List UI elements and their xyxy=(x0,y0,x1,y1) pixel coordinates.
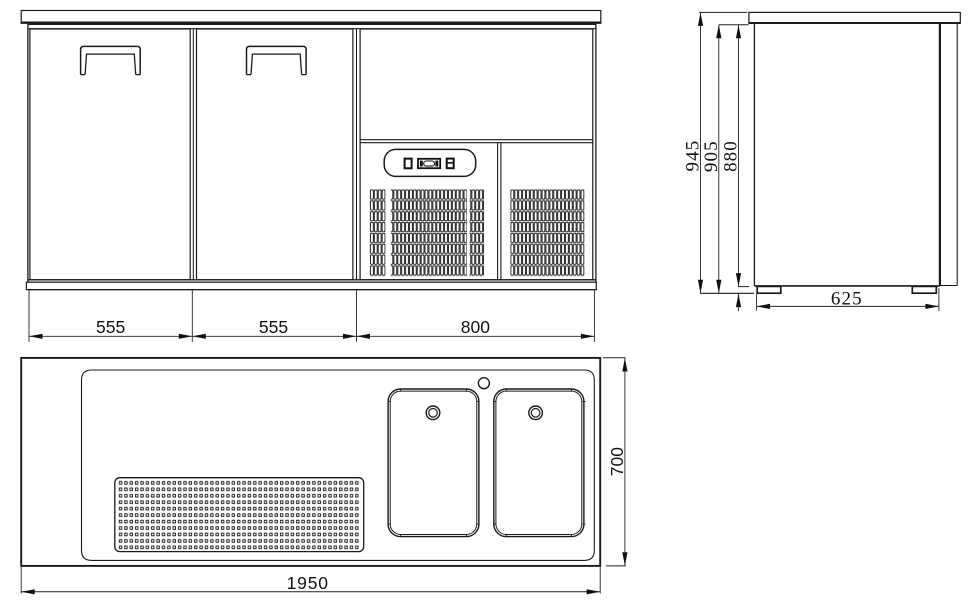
svg-text:700: 700 xyxy=(607,447,627,476)
svg-text:555: 555 xyxy=(259,317,288,337)
svg-text:905: 905 xyxy=(701,140,722,172)
svg-text:880: 880 xyxy=(721,140,742,172)
svg-text:1950: 1950 xyxy=(287,573,329,593)
svg-text:800: 800 xyxy=(461,317,490,337)
svg-text:555: 555 xyxy=(96,317,125,337)
svg-text:625: 625 xyxy=(831,289,863,310)
